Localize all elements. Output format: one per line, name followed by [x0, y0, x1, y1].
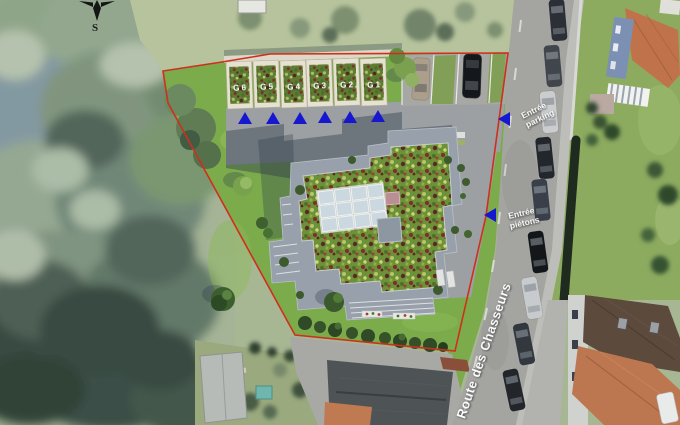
- garage-label: G 2: [340, 80, 354, 89]
- garage: G 1: [360, 58, 387, 106]
- skylight: [649, 321, 660, 333]
- garage-label: G 5: [260, 82, 274, 91]
- garage-label: G 1: [367, 80, 381, 89]
- garden-shed-roof: [200, 352, 247, 423]
- garage-label: G 4: [287, 82, 301, 91]
- garage: G 6: [226, 61, 253, 109]
- aerial-site-plan: G 6 G 5 G 4 G 3 G 2 G 1: [0, 0, 680, 425]
- parked-car: [543, 44, 563, 87]
- garage: G 2: [333, 58, 360, 106]
- compass-south-label: S: [92, 22, 98, 34]
- garage: G 4: [280, 60, 307, 108]
- roof-skylight-gray: [377, 217, 402, 243]
- garage-label: G 6: [233, 83, 247, 92]
- roof-hatch-pink: [385, 192, 400, 205]
- bin-shelter: [456, 132, 465, 138]
- garage-row: G 6 G 5 G 4 G 3 G 2 G 1: [226, 58, 387, 109]
- garden-pool: [256, 386, 272, 399]
- small-roof-structure: [238, 0, 266, 13]
- skylight: [617, 317, 628, 329]
- parked-car: [548, 0, 568, 42]
- garage: G 5: [253, 60, 280, 108]
- garage: G 3: [306, 59, 333, 107]
- parked-car: [462, 54, 482, 99]
- site-plan-image: G 6 G 5 G 4 G 3 G 2 G 1: [0, 0, 680, 425]
- garage-label: G 3: [313, 81, 327, 90]
